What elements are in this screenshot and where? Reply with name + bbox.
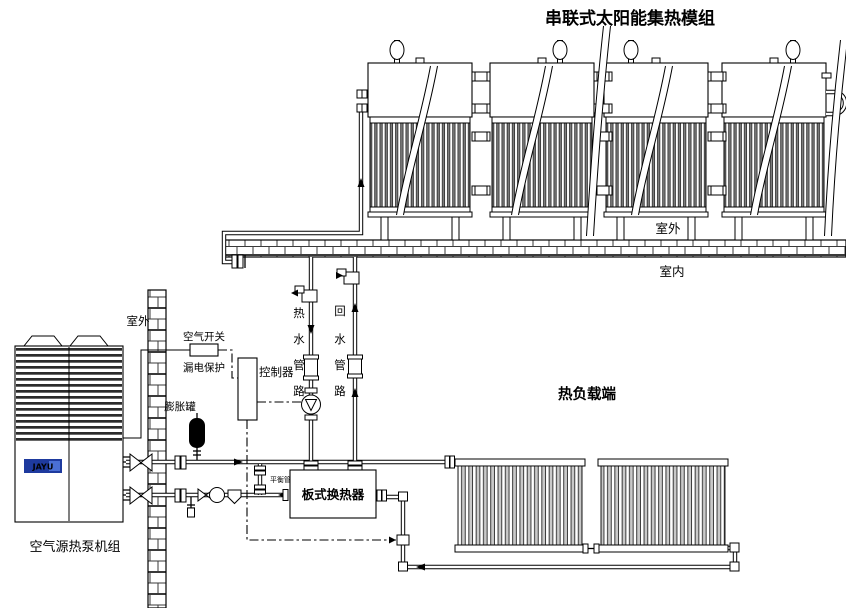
roof-indoor-label: 室内 bbox=[659, 264, 684, 279]
check-valve-icon bbox=[348, 355, 363, 378]
logo-text: JAYU bbox=[32, 463, 54, 472]
diagram-title: 串联式太阳能集热模组 bbox=[545, 8, 715, 29]
balance-pipe-label: 平衡管 bbox=[270, 475, 291, 484]
heat-load-label: 热负载端 bbox=[558, 385, 616, 403]
flow-sensor-icon bbox=[304, 355, 319, 380]
heat-pump-logo: JAYU bbox=[24, 459, 62, 473]
collector-module-3 bbox=[604, 58, 708, 240]
air-switch bbox=[190, 344, 218, 356]
roof-outdoor-label: 室外 bbox=[655, 221, 681, 236]
heat-pump-label: 空气源热泵机组 bbox=[29, 539, 120, 555]
plate-heat-exchanger: 板式换热器 bbox=[290, 470, 376, 518]
svg-text:水: 水 bbox=[293, 332, 305, 346]
controller-label: 控制器 bbox=[259, 365, 294, 379]
plate-heat-exchanger-label: 板式换热器 bbox=[302, 487, 365, 502]
svg-text:热: 热 bbox=[293, 306, 305, 320]
heat-pump-unit: JAYU 空气源热泵机组 bbox=[15, 336, 131, 555]
expansion-tank-label: 膨胀罐 bbox=[164, 400, 196, 413]
collector-module-4 bbox=[722, 58, 826, 240]
leakage-protection-label: 漏电保护 bbox=[183, 361, 225, 374]
svg-text:路: 路 bbox=[293, 384, 305, 398]
port-flange bbox=[283, 490, 288, 501]
radiator bbox=[455, 459, 585, 552]
air-switch-label: 空气开关 bbox=[183, 330, 225, 343]
svg-text:管: 管 bbox=[334, 358, 346, 372]
controller bbox=[238, 358, 257, 420]
svg-text:路: 路 bbox=[334, 384, 346, 398]
radiator bbox=[598, 459, 728, 552]
svg-text:回: 回 bbox=[334, 304, 346, 318]
solar-heat-pump-schematic: 串联式太阳能集热模组 室外 室内 bbox=[0, 0, 846, 608]
wall-outdoor-label: 室外 bbox=[127, 314, 150, 328]
collector-module-1 bbox=[368, 58, 472, 240]
svg-text:管: 管 bbox=[293, 358, 305, 372]
svg-text:水: 水 bbox=[334, 332, 346, 346]
